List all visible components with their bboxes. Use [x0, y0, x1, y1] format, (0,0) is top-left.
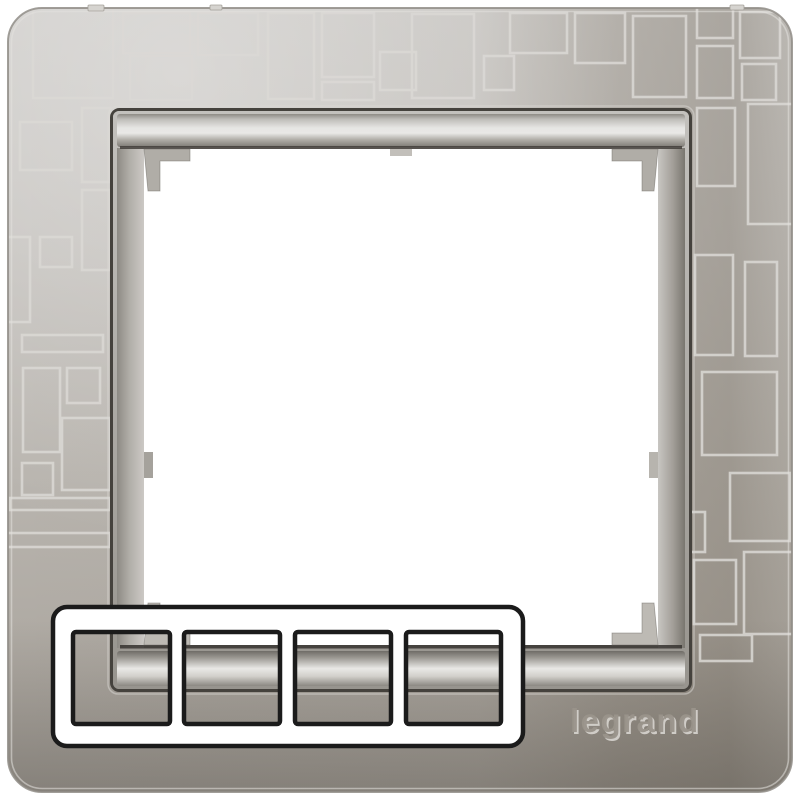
clip-tab-left [144, 452, 153, 478]
window-opening [144, 149, 658, 645]
legrand-logo-text: legrand [570, 702, 700, 739]
product-photo: legrand legrand [0, 0, 800, 800]
clip-tab-top [390, 149, 412, 156]
bezel-bar-top [117, 114, 685, 147]
product-image: legrand legrand [0, 0, 800, 800]
bezel-strip-left [117, 148, 144, 648]
bezel-seam-top [120, 146, 682, 149]
clip-tab-right [649, 452, 658, 478]
mold-notch [210, 5, 222, 10]
bezel-strip-right [658, 148, 685, 648]
mold-notch [730, 5, 744, 10]
legrand-logo: legrand legrand [570, 702, 702, 741]
mold-notch [88, 5, 104, 11]
